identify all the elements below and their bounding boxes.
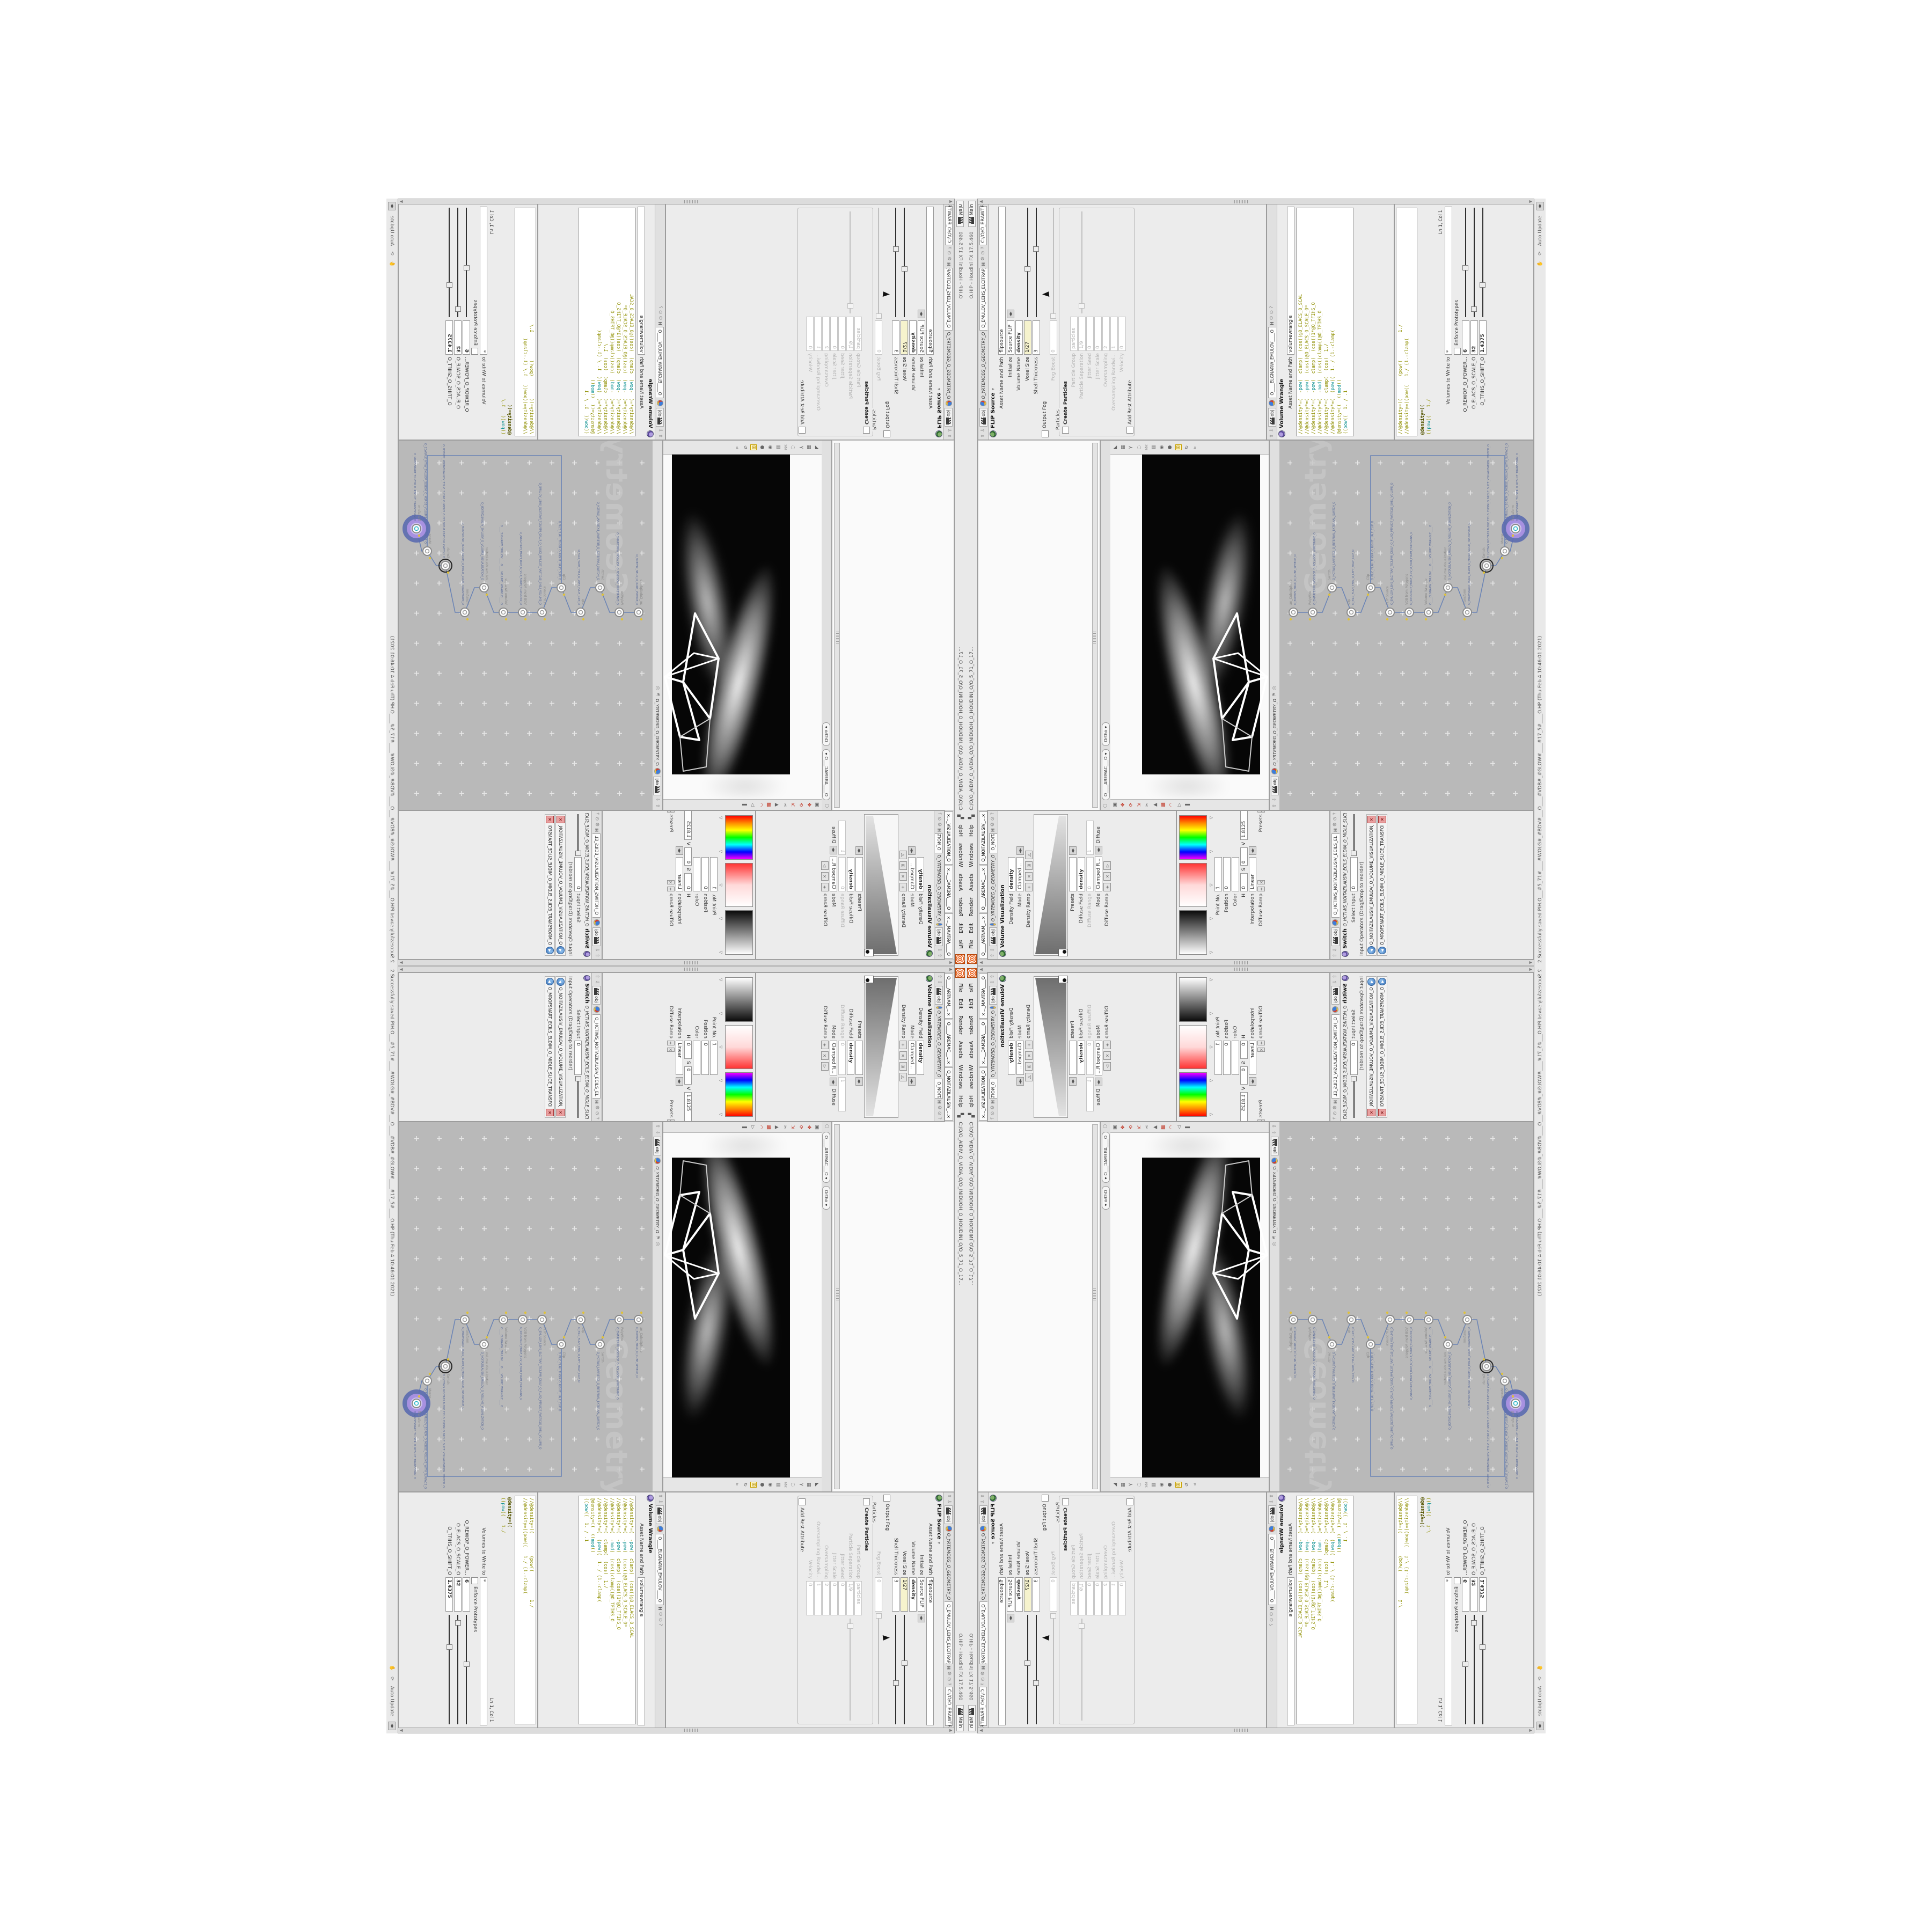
- view-tool-icon[interactable]: ▦: [1121, 445, 1126, 450]
- gear-icon[interactable]: ⚙: [990, 822, 996, 826]
- network-graph[interactable]: Geometryan_CubeSphereO_EREHPS_EBUC_O_CUB…: [399, 1122, 653, 1491]
- desktop-tab[interactable]: O_NOITAZILAUSIV_... ×: [979, 1067, 987, 1121]
- slider-handle[interactable]: [575, 851, 581, 856]
- slider-handle[interactable]: [1050, 313, 1056, 319]
- reorder-handle-icon[interactable]: ◀: [1378, 978, 1386, 985]
- nav-up-icon[interactable]: ⇧: [936, 953, 942, 957]
- horizontal-scrollbar[interactable]: [1092, 1124, 1098, 1489]
- view-tool-icon[interactable]: ◌: [790, 445, 795, 450]
- param-field[interactable]: 0: [831, 1581, 838, 1615]
- slider-handle[interactable]: [455, 306, 461, 312]
- vex-code-editor[interactable]: //@density=(( (pow(( 1.///@density=((pow…: [1396, 1496, 1417, 1724]
- remove-input-button[interactable]: ×: [1378, 1109, 1386, 1116]
- menu-assets[interactable]: Assets: [969, 1040, 975, 1060]
- select-spinner[interactable]: ◀▶: [1069, 846, 1077, 855]
- node-flag-dot[interactable]: [418, 535, 420, 537]
- param-field[interactable]: 1: [1110, 1581, 1118, 1615]
- view-tool-icon[interactable]: ▦: [806, 445, 811, 450]
- reorder-handle-icon[interactable]: ◀: [1367, 978, 1375, 986]
- slider-handle[interactable]: [893, 1680, 899, 1686]
- geometry-tab[interactable]: O_YRTEMOEG_O_GEOMETRY_O: [981, 1533, 986, 1600]
- view-tool-icon[interactable]: ⊞: [750, 444, 757, 451]
- gear-icon[interactable]: ⚙: [990, 1106, 996, 1110]
- slider-handle[interactable]: [876, 313, 882, 319]
- nav-up-icon[interactable]: ⇧: [1272, 803, 1277, 808]
- nav-up-icon[interactable]: ⇧: [946, 1494, 952, 1498]
- viewport-right-toolbar[interactable]: ◣▦Y◌abc▥◉●⊞↻▹: [663, 441, 822, 455]
- remove-input-button[interactable]: ×: [546, 816, 554, 823]
- tool-icon[interactable]: ▷: [1177, 1125, 1182, 1129]
- nav-down-icon[interactable]: ⇩: [936, 948, 942, 952]
- nav-down-icon[interactable]: ⇩: [1333, 980, 1338, 985]
- main-desktop-tab[interactable]: Main: [968, 1705, 976, 1732]
- param-field[interactable]: [1232, 1041, 1239, 1075]
- ramp-handle-glyph[interactable]: ▽: [1209, 1079, 1214, 1082]
- desktop-tab[interactable]: O____AREMAC__... ×: [945, 866, 953, 913]
- param-slider[interactable]: [454, 207, 462, 318]
- tool-icon[interactable]: ▣: [814, 1125, 819, 1130]
- houdini-logo-icon[interactable]: [956, 954, 965, 964]
- viewport-canvas[interactable]: [1110, 455, 1269, 799]
- param-slider[interactable]: [1078, 1618, 1086, 1722]
- menu-file[interactable]: File: [957, 982, 963, 993]
- slider-handle[interactable]: [1079, 303, 1085, 309]
- tool-icon[interactable]: ▲: [774, 803, 779, 807]
- remove-input-button[interactable]: ×: [546, 1109, 554, 1116]
- viewport-left-toolbar[interactable]: ▣✥⟳⇲✂▲▩◠▷❚: [1110, 1122, 1269, 1133]
- update-loop-icon[interactable]: ⟳: [1538, 251, 1543, 255]
- param-field[interactable]: 0: [1094, 1581, 1102, 1615]
- node-flag-dot[interactable]: [640, 618, 642, 620]
- node-flag-dot[interactable]: [447, 1358, 449, 1360]
- param-field[interactable]: particles: [1070, 1581, 1078, 1615]
- ramp-handle-glyph[interactable]: ▽: [718, 1079, 723, 1082]
- slider-handle[interactable]: [447, 282, 452, 288]
- horizontal-scrollbar[interactable]: [1092, 443, 1098, 808]
- param-field[interactable]: 1/27: [901, 1577, 908, 1612]
- density-ramp-widget[interactable]: [864, 814, 898, 956]
- select-spinner[interactable]: ◀▶: [908, 846, 916, 855]
- context-tab[interactable]: obj: [989, 927, 997, 946]
- ramp-handle-glyph[interactable]: ▽: [1209, 883, 1214, 886]
- param-slider[interactable]: [1033, 1614, 1040, 1725]
- context-tab[interactable]: obj: [1271, 1137, 1279, 1155]
- density-ramp-widget[interactable]: [864, 976, 898, 1118]
- gear-icon[interactable]: ⚙: [980, 1671, 986, 1675]
- target-icon[interactable]: ◎: [655, 686, 660, 690]
- view-tool-icon[interactable]: Y: [1129, 1483, 1134, 1487]
- param-field[interactable]: Linear: [676, 1041, 683, 1075]
- param-field[interactable]: [1232, 857, 1239, 891]
- search-icon[interactable]: ⊙: [657, 1618, 663, 1622]
- search-icon[interactable]: ⊙: [936, 1111, 942, 1116]
- menu-windows[interactable]: Windows: [969, 1064, 975, 1090]
- header-path-field[interactable]: C:/O/O_ERAWTF...: [979, 1687, 987, 1726]
- param-field[interactable]: Clamped...: [908, 857, 916, 891]
- update-mode-spinner[interactable]: ◀▶: [1536, 202, 1544, 210]
- nav-up-icon[interactable]: ⇧: [655, 1124, 660, 1129]
- view-tool-icon[interactable]: ▥: [775, 445, 781, 450]
- help-icon[interactable]: ?: [1333, 813, 1338, 815]
- select-spinner[interactable]: ◀▶: [1095, 846, 1102, 854]
- ramp-handle-glyph[interactable]: ▽: [718, 1012, 723, 1015]
- spare-param-field[interactable]: 6: [463, 1577, 470, 1612]
- view-tool-icon[interactable]: ▥: [1151, 445, 1157, 450]
- ramp-gradient-bars[interactable]: [723, 811, 755, 959]
- node-tab[interactable]: O_HCTIWS_NOITAZILAUSIV_ECILS_EL: [593, 833, 601, 918]
- node-flag-dot[interactable]: [1425, 618, 1427, 620]
- node-flag-dot[interactable]: [1463, 1312, 1466, 1314]
- param-field[interactable]: 1: [1110, 317, 1118, 351]
- menu-render[interactable]: Render: [957, 896, 963, 918]
- search-icon[interactable]: ⊙: [980, 1677, 986, 1681]
- param-field[interactable]: 2: [1102, 317, 1110, 351]
- checkbox[interactable]: [1042, 430, 1049, 437]
- pin-icon[interactable]: ⚑: [1272, 1235, 1277, 1240]
- param-field[interactable]: 0: [1118, 1581, 1126, 1615]
- param-field[interactable]: Clamped R...: [830, 1041, 837, 1075]
- ramp-button[interactable]: ⊞: [1025, 861, 1033, 870]
- nav-up-icon[interactable]: ⇧: [1272, 1124, 1277, 1129]
- view-tool-icon[interactable]: ↻: [1184, 1483, 1190, 1487]
- param-field[interactable]: 2: [1102, 1581, 1110, 1615]
- nav-down-icon[interactable]: ⇩: [655, 1131, 660, 1135]
- pin-icon[interactable]: ⚑: [1272, 692, 1277, 697]
- param-field[interactable]: Clamped R...: [1095, 1041, 1102, 1075]
- node-tab[interactable]: O____ELGNARW_EMULOV____O: [656, 327, 664, 398]
- ramp-handle-glyph[interactable]: ▽: [718, 816, 723, 819]
- viewport-right-toolbar[interactable]: ◣▦Y◌abc▥◉●⊞↻▹: [1110, 441, 1269, 455]
- close-icon[interactable]: ×: [981, 1115, 986, 1118]
- context-tab[interactable]: obj: [1331, 986, 1340, 1005]
- main-desktop-tab[interactable]: Main: [957, 1705, 964, 1732]
- node-flag-dot[interactable]: [1367, 1336, 1369, 1338]
- param-field[interactable]: [855, 857, 863, 891]
- slider-handle[interactable]: [893, 246, 899, 252]
- param-slider[interactable]: [463, 207, 470, 318]
- ramp-button[interactable]: △: [899, 851, 907, 859]
- close-icon[interactable]: ×: [981, 1060, 986, 1064]
- node-flag-dot[interactable]: [621, 1312, 623, 1314]
- desktop-tab[interactable]: O_NOITAZILAUSIV_... ×: [945, 1067, 953, 1121]
- param-field[interactable]: 1: [815, 1581, 822, 1615]
- remove-input-button[interactable]: ×: [1367, 1109, 1375, 1117]
- param-slider[interactable]: [1050, 1614, 1057, 1725]
- param-slider[interactable]: [875, 1614, 882, 1725]
- param-field[interactable]: Source FLIP: [918, 320, 925, 355]
- close-icon[interactable]: ×: [947, 1013, 952, 1016]
- gear-icon[interactable]: ⚙: [1269, 1612, 1275, 1616]
- context-tab[interactable]: obj: [935, 927, 943, 946]
- hand-icon[interactable]: ✋: [390, 1665, 395, 1671]
- tool-icon[interactable]: ⟳: [798, 803, 803, 807]
- param-slider[interactable]: [454, 1614, 462, 1725]
- menu-edit[interactable]: Edit: [969, 922, 975, 934]
- gear-icon[interactable]: ⚙: [1333, 1106, 1338, 1110]
- tool-icon[interactable]: ▩: [766, 802, 771, 807]
- nav-down-icon[interactable]: ⇩: [946, 428, 952, 433]
- tool-icon[interactable]: ▣: [814, 802, 819, 807]
- node-flag-dot[interactable]: [563, 594, 565, 596]
- param-field[interactable]: density: [909, 1577, 917, 1612]
- checkbox[interactable]: [884, 430, 891, 437]
- asset-field[interactable]: flipsource: [998, 207, 1006, 355]
- context-tab[interactable]: obj: [1268, 408, 1276, 427]
- nav-up-icon[interactable]: ⇧: [594, 953, 599, 957]
- search-icon[interactable]: ⊙: [1269, 1618, 1275, 1622]
- ramp-button[interactable]: +: [1025, 883, 1033, 891]
- density-ramp-widget[interactable]: [1034, 976, 1068, 1118]
- enforce-checkbox[interactable]: [1454, 1577, 1461, 1584]
- param-field[interactable]: 0: [807, 317, 814, 351]
- left-scroll-strip[interactable]: ▲▼: [978, 966, 1534, 972]
- s-field[interactable]: 0: [1240, 847, 1248, 866]
- param-slider[interactable]: [1078, 210, 1086, 314]
- asset-field[interactable]: volumewrangle: [1287, 1577, 1294, 1725]
- add-point-button[interactable]: +: [1257, 1041, 1265, 1045]
- node-flag-dot[interactable]: [602, 594, 604, 596]
- main-desktop-tab[interactable]: Main: [968, 201, 976, 228]
- update-mode-spinner[interactable]: ◀▶: [389, 1722, 396, 1730]
- network-canvas[interactable]: Geometryan_CubeSphereO_EREHPS_EBUC_O_CUB…: [1279, 441, 1533, 810]
- ramp-button[interactable]: +: [899, 883, 907, 891]
- menu-help[interactable]: Help: [969, 823, 975, 838]
- ramp-handle-glyph[interactable]: ▽: [1209, 850, 1214, 853]
- node-tab[interactable]: O_HCTIWS_NOITAZILAUSIV_ECILS_EL: [1331, 833, 1340, 918]
- param-field[interactable]: 0: [838, 857, 846, 891]
- node-flag-dot[interactable]: [1290, 618, 1292, 620]
- input-operator-row[interactable]: ◀O_NOITAZILAUSIV_EMULOV_O_VOLUME_VISUALI…: [1366, 814, 1377, 956]
- help-icon[interactable]: ?: [936, 813, 942, 815]
- node-tab[interactable]: O_NOITAZILAUSIV_EMULO: [989, 1079, 997, 1098]
- ramp-gradient-bars[interactable]: [1177, 811, 1209, 959]
- ramp-button[interactable]: △: [1025, 1073, 1033, 1081]
- slider-handle[interactable]: [575, 1076, 581, 1081]
- view-tool-icon[interactable]: ●: [759, 1483, 765, 1487]
- ramp-button[interactable]: ×: [1103, 1051, 1111, 1060]
- param-field[interactable]: density: [917, 857, 924, 891]
- tool-icon[interactable]: ⇲: [790, 1125, 795, 1130]
- enforce-checkbox[interactable]: [472, 1577, 479, 1584]
- slider-handle[interactable]: [902, 1660, 908, 1666]
- node-flag-dot[interactable]: [1483, 1358, 1485, 1360]
- slider-handle[interactable]: [1462, 265, 1468, 270]
- desktop-tab[interactable]: O_NOITAZILAUSIV_... ×: [979, 811, 987, 865]
- vex-code-editor[interactable]: //@density*=( -pow( clamp( (cos((@O_ELAC…: [578, 1496, 636, 1724]
- close-icon[interactable]: ×: [947, 1060, 952, 1064]
- gear-icon[interactable]: ⚙: [946, 257, 952, 261]
- ramp-button[interactable]: ▷: [1103, 861, 1111, 870]
- spare-param-field[interactable]: 32: [454, 320, 462, 355]
- node-flag-dot[interactable]: [1309, 1312, 1311, 1314]
- node-tab[interactable]: O_NOITAZILAUSIV_EMULO: [935, 833, 943, 853]
- param-field[interactable]: density: [909, 320, 917, 355]
- param-field[interactable]: Source FLIP: [1007, 1577, 1014, 1612]
- grayscale-ramp-bar[interactable]: [725, 910, 753, 955]
- param-field[interactable]: Source FLIP: [918, 1577, 925, 1612]
- ramp-handle-glyph[interactable]: ▽: [718, 951, 723, 954]
- reorder-handle-icon[interactable]: ◀: [1378, 947, 1386, 954]
- tool-icon[interactable]: ❚: [742, 1125, 747, 1130]
- node-flag-dot[interactable]: [1463, 618, 1466, 620]
- gear-icon[interactable]: ⚙: [657, 316, 663, 320]
- menu-edit[interactable]: Edit: [957, 998, 963, 1010]
- node-flag-dot[interactable]: [524, 618, 526, 620]
- input-operator-row[interactable]: ◀O_MROFSNART_ECILS_ELDIM_O_MIDLE_SLICE_T…: [1377, 814, 1387, 956]
- ramp-button[interactable]: ▷: [821, 861, 829, 870]
- node-flag-dot[interactable]: [582, 1312, 584, 1314]
- node-flag-dot[interactable]: [466, 1312, 469, 1314]
- ramp-button[interactable]: ×: [1025, 1051, 1033, 1060]
- ramp-button[interactable]: ⊞: [899, 861, 907, 870]
- param-field[interactable]: 1: [1214, 1041, 1222, 1075]
- param-slider[interactable]: [1033, 207, 1040, 318]
- auto-update-toggle[interactable]: Auto Update: [390, 1686, 395, 1716]
- param-field[interactable]: [693, 1041, 700, 1075]
- select-spinner[interactable]: ◀▶: [1016, 1077, 1024, 1086]
- param-field[interactable]: 1: [710, 857, 718, 891]
- add-point-button[interactable]: +: [667, 887, 675, 891]
- node-tab[interactable]: O_EMULOV_LEHS_ELCITRAP_TICI: [979, 1601, 987, 1664]
- spare-param-field[interactable]: 6: [1462, 320, 1469, 355]
- tool-icon[interactable]: ✂: [782, 1125, 787, 1130]
- geometry-tab[interactable]: O_YRTEMOEG_O_GEOMETRY_O: [937, 855, 942, 922]
- ramp-button[interactable]: +: [1025, 1041, 1033, 1049]
- param-field[interactable]: 0: [1050, 320, 1057, 355]
- nav-down-icon[interactable]: ⇩: [1269, 1500, 1275, 1504]
- nav-down-icon[interactable]: ⇩: [1269, 428, 1275, 433]
- gear-icon[interactable]: ⚙: [1269, 316, 1275, 320]
- view-tool-icon[interactable]: ●: [1167, 1483, 1173, 1487]
- ramp-button[interactable]: ×: [1025, 872, 1033, 881]
- select-spinner[interactable]: ◀▶: [1007, 1614, 1014, 1622]
- ramp-gradient-bars[interactable]: [723, 973, 755, 1121]
- help-icon[interactable]: ?: [657, 1623, 663, 1626]
- ortho-selector[interactable]: Ortho▾: [1102, 722, 1110, 746]
- h-field[interactable]: 0: [684, 873, 692, 891]
- spare-param-field[interactable]: 32: [1470, 320, 1478, 355]
- remove-input-button[interactable]: ×: [1378, 816, 1386, 823]
- node-flag-dot[interactable]: [429, 557, 431, 559]
- node-flag-dot[interactable]: [1483, 572, 1485, 574]
- view-tool-icon[interactable]: Y: [1129, 446, 1134, 449]
- search-icon[interactable]: ⊙: [990, 817, 996, 821]
- param-field[interactable]: particles: [1070, 317, 1078, 351]
- target-icon[interactable]: ◎: [1272, 1242, 1277, 1246]
- param-field[interactable]: 0: [1086, 857, 1094, 891]
- param-field[interactable]: 3: [1033, 320, 1040, 355]
- volumes-field[interactable]: *: [480, 207, 487, 355]
- param-field[interactable]: Clamped R...: [830, 857, 837, 891]
- search-icon[interactable]: ⊙: [1333, 817, 1338, 821]
- close-icon[interactable]: ×: [947, 814, 952, 817]
- param-field[interactable]: 0: [1086, 1581, 1094, 1615]
- asset-field[interactable]: volumewrangle: [638, 1577, 645, 1725]
- param-slider[interactable]: [847, 210, 854, 314]
- param-field[interactable]: density: [1008, 857, 1015, 891]
- param-field[interactable]: 0: [839, 317, 846, 351]
- hand-icon[interactable]: ✋: [390, 261, 395, 267]
- param-slider[interactable]: [1462, 207, 1469, 318]
- asset-field[interactable]: volumewrangle: [1287, 207, 1294, 355]
- search-icon[interactable]: ⊙: [936, 817, 942, 821]
- view-tool-icon[interactable]: ▦: [806, 1482, 811, 1487]
- nav-down-icon[interactable]: ⇩: [594, 948, 599, 952]
- node-tab[interactable]: O_EMULOV_LEHS_ELCITRAP_TICI: [979, 268, 987, 331]
- param-slider[interactable]: [892, 1614, 899, 1725]
- nav-down-icon[interactable]: ⇩: [990, 980, 996, 985]
- checkbox[interactable]: [863, 427, 870, 434]
- search-icon[interactable]: ⊙: [1333, 1111, 1338, 1116]
- nav-up-icon[interactable]: ⇧: [1269, 1494, 1275, 1498]
- node-tab[interactable]: O_EMULOV_LEHS_ELCITRAP_TICI: [945, 1601, 953, 1664]
- param-field[interactable]: density: [847, 1041, 854, 1075]
- ramp-handle-glyph[interactable]: ▽: [718, 883, 723, 886]
- checkbox[interactable]: [1062, 1498, 1069, 1505]
- menu-assets[interactable]: Assets: [957, 873, 963, 892]
- node-tab[interactable]: O_NOITAZILAUSIV_EMULO: [935, 1079, 943, 1098]
- spare-param-field[interactable]: 32: [454, 1577, 462, 1612]
- select-spinner[interactable]: ◀▶: [676, 1077, 683, 1086]
- nav-down-icon[interactable]: ⇩: [980, 428, 986, 433]
- vex-code-editor[interactable]: //@density=(( (pow(( 1.///@density=((pow…: [515, 1496, 536, 1724]
- select-spinner[interactable]: ◀▶: [830, 1078, 837, 1086]
- volumes-field[interactable]: *: [1445, 1577, 1452, 1725]
- menu-edit[interactable]: Edit: [969, 998, 975, 1010]
- menu-windows[interactable]: Windows: [969, 842, 975, 868]
- context-tab[interactable]: obj: [935, 986, 943, 1005]
- view-tool-icon[interactable]: ◌: [1137, 1483, 1142, 1487]
- ramp-handle-glyph[interactable]: ▽: [718, 978, 723, 981]
- slider-handle[interactable]: [1351, 851, 1357, 856]
- gear-icon[interactable]: ⚙: [936, 822, 942, 826]
- select-spinner[interactable]: ◀▶: [1249, 846, 1256, 855]
- tool-icon[interactable]: ◠: [1169, 1125, 1174, 1130]
- tool-icon[interactable]: ⟳: [1129, 803, 1134, 807]
- s-field[interactable]: 0: [684, 847, 692, 866]
- horizontal-scrollbar[interactable]: [834, 443, 840, 808]
- nav-up-icon[interactable]: ⇧: [946, 434, 952, 438]
- add-point-button[interactable]: +: [667, 1041, 675, 1045]
- auto-update-toggle[interactable]: Auto Update: [390, 216, 395, 246]
- menu-file[interactable]: File: [969, 939, 975, 950]
- input-operator-row[interactable]: ◀O_MROFSNART_ECILS_ELDIM_O_MIDLE_SLICE_T…: [1377, 976, 1387, 1118]
- grayscale-ramp-bar[interactable]: [1179, 977, 1207, 1022]
- search-icon[interactable]: ⊙: [657, 310, 663, 314]
- checkbox[interactable]: [799, 427, 806, 434]
- ramp-button[interactable]: +: [821, 1041, 829, 1049]
- nav-down-icon[interactable]: ⇩: [946, 1500, 952, 1504]
- view-tool-icon[interactable]: ▹: [734, 446, 740, 449]
- node-flag-dot[interactable]: [1425, 1312, 1427, 1314]
- context-tab[interactable]: obj: [654, 1137, 662, 1155]
- node-tab[interactable]: O_NOITAZILAUSIV_EMULO: [989, 833, 997, 853]
- desktop-tab[interactable]: O_NOITAZILAUSIV_... ×: [945, 811, 953, 865]
- network-graph[interactable]: Geometryan_CubeSphereO_EREHPS_EBUC_O_CUB…: [399, 441, 653, 810]
- select-input-field[interactable]: 0: [1350, 857, 1358, 891]
- node-flag-dot[interactable]: [1406, 1312, 1408, 1314]
- context-tab[interactable]: obj: [656, 1505, 664, 1524]
- tool-icon[interactable]: ▩: [766, 1125, 771, 1130]
- param-slider[interactable]: [1470, 1614, 1478, 1725]
- geometry-tab[interactable]: O_YRTEMOEG_O_GEOMETRY_O: [991, 855, 996, 922]
- tool-icon[interactable]: ◠: [758, 1125, 763, 1130]
- help-icon[interactable]: ?: [990, 1117, 996, 1119]
- ramp-button[interactable]: ×: [899, 872, 907, 881]
- node-tab[interactable]: O____ELGNARW_EMULOV____O: [1268, 327, 1276, 398]
- select-spinner[interactable]: ◀▶: [1069, 1077, 1077, 1086]
- menu-render[interactable]: Render: [969, 896, 975, 918]
